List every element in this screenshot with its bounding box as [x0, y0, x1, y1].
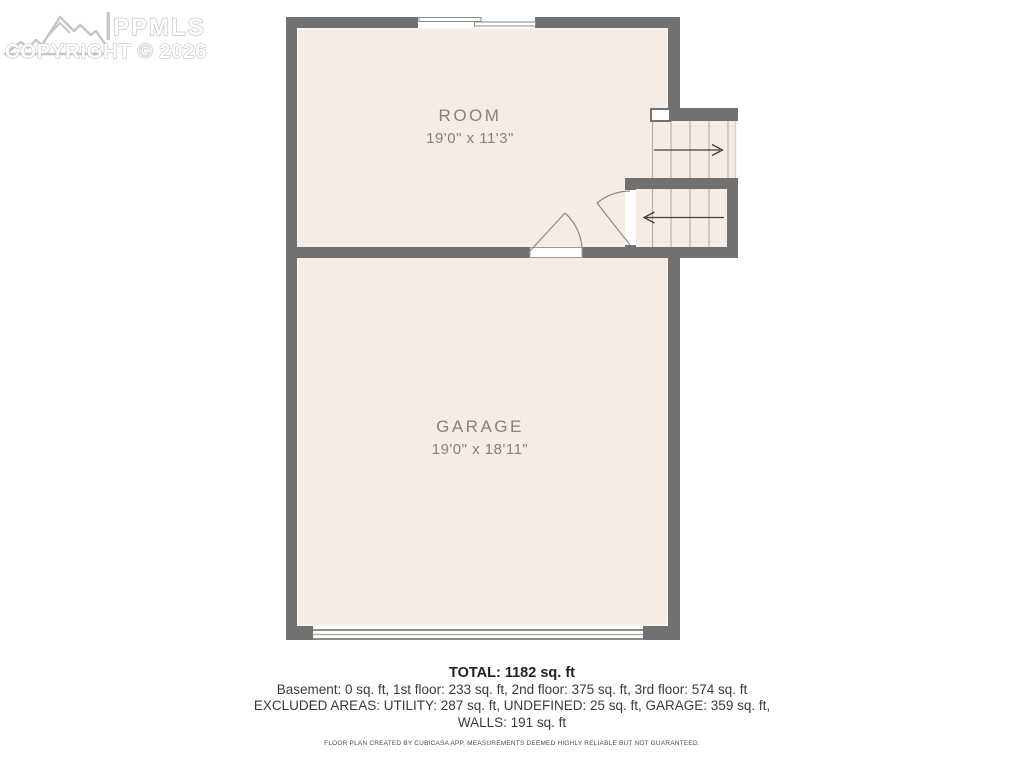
- garage-label: GARAGE 19'0" x 18'11": [370, 417, 590, 458]
- floor-breakdown: Basement: 0 sq. ft, 1st floor: 233 sq. f…: [0, 682, 1024, 699]
- stair-landing-box: [651, 109, 670, 121]
- room-label: ROOM 19'0" x 11'3": [360, 106, 580, 147]
- disclaimer-text: FLOOR PLAN CREATED BY CUBICASA APP. MEAS…: [0, 740, 1024, 747]
- floor-plan-page: PPMLS COPYRIGHT © 2026 ROOM 19'0" x 11'3…: [0, 0, 1024, 767]
- sliding-door: [418, 17, 536, 28]
- ppmls-watermark: PPMLS COPYRIGHT © 2026: [3, 4, 213, 68]
- copyright-text: COPYRIGHT © 2026: [5, 40, 207, 63]
- excluded-areas: EXCLUDED AREAS: UTILITY: 287 sq. ft, UND…: [0, 698, 1024, 715]
- room-dimensions: 19'0" x 18'11": [370, 441, 590, 458]
- logo-divider: [107, 12, 111, 40]
- room-name: GARAGE: [370, 417, 590, 437]
- area-summary: TOTAL: 1182 sq. ft Basement: 0 sq. ft, 1…: [0, 665, 1024, 731]
- brand-text: PPMLS: [113, 14, 206, 41]
- room-name: ROOM: [360, 106, 580, 126]
- walls-area: WALLS: 191 sq. ft: [0, 715, 1024, 732]
- total-area: TOTAL: 1182 sq. ft: [0, 665, 1024, 682]
- garage-door: [313, 630, 643, 639]
- room-dimensions: 19'0" x 11'3": [360, 130, 580, 147]
